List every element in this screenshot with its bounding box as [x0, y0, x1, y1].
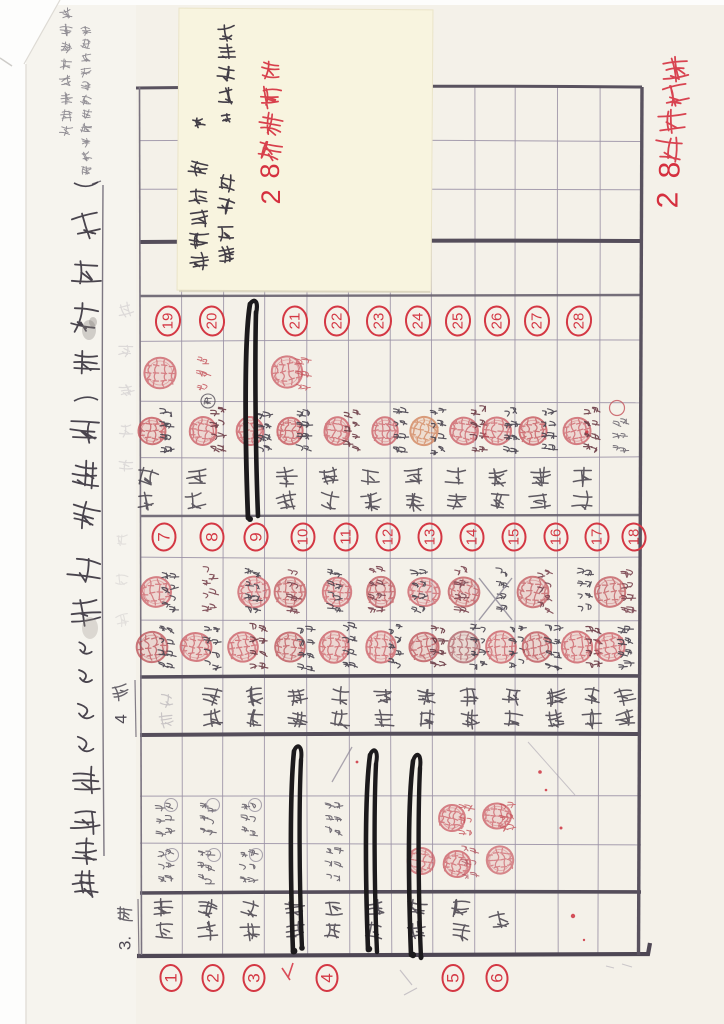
svg-text:22: 22 [329, 313, 346, 330]
svg-text:13: 13 [422, 529, 439, 546]
svg-text:3.: 3. [116, 936, 135, 950]
svg-text:27: 27 [529, 313, 546, 330]
svg-text:19: 19 [160, 313, 177, 330]
svg-text:20: 20 [204, 313, 221, 330]
svg-text:2: 2 [652, 192, 685, 209]
svg-text:14: 14 [464, 529, 481, 546]
svg-text:3: 3 [245, 973, 264, 982]
svg-text:18: 18 [626, 529, 643, 546]
svg-text:5: 5 [444, 973, 463, 982]
svg-text:4: 4 [318, 973, 337, 982]
svg-text:6: 6 [488, 973, 507, 982]
svg-text:1: 1 [162, 973, 181, 982]
svg-text:11: 11 [338, 529, 355, 545]
svg-text:21: 21 [287, 313, 304, 330]
svg-text:23: 23 [371, 313, 388, 330]
svg-text:26: 26 [489, 313, 506, 330]
svg-text:2: 2 [256, 189, 286, 204]
svg-text:12: 12 [380, 529, 397, 546]
svg-text:28: 28 [571, 313, 588, 330]
svg-text:2: 2 [204, 973, 223, 982]
svg-text:8: 8 [203, 532, 222, 541]
svg-text:10: 10 [295, 529, 312, 546]
svg-text:9: 9 [247, 532, 266, 541]
svg-text:25: 25 [450, 313, 467, 330]
svg-text:7: 7 [155, 532, 174, 541]
svg-text:24: 24 [410, 313, 427, 330]
svg-text:17: 17 [589, 529, 606, 546]
svg-text:16: 16 [548, 529, 565, 546]
svg-text:8: 8 [255, 163, 285, 178]
svg-text:4: 4 [112, 714, 131, 723]
svg-text:8: 8 [654, 162, 687, 179]
svg-text:15: 15 [506, 529, 523, 546]
